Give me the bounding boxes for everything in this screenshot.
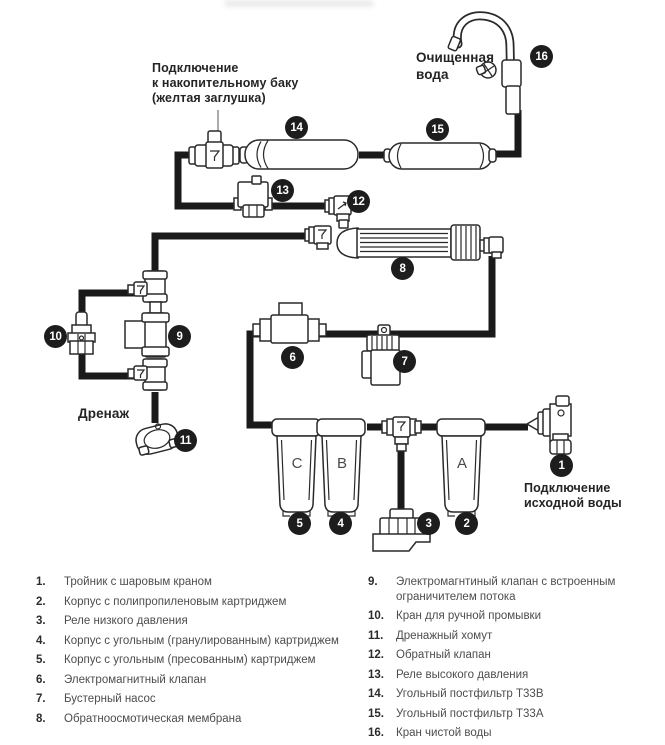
- low-pressure-tee-icon: [382, 417, 421, 451]
- membrane-elbow-fitting-icon: [305, 226, 331, 249]
- clean-water-label: Очищенная вода: [416, 49, 494, 83]
- tank-tee-fitting-icon: [189, 131, 239, 168]
- tank-connection-label: Подключение к накопительному баку (желта…: [152, 61, 298, 106]
- part-badge-6: 6: [281, 346, 304, 369]
- legend-item: 13.Реле высокого давления: [368, 668, 634, 683]
- legend-item-text: Угольный постфильтр Т33А: [396, 707, 543, 722]
- legend-item-number: 12.: [368, 648, 396, 663]
- part-badge-5: 5: [288, 512, 311, 535]
- part-badge-10: 10: [44, 325, 67, 348]
- installation-diagram-page: Подключение к накопительному баку (желта…: [0, 0, 665, 745]
- part-badge-14: 14: [285, 116, 308, 139]
- legend-item: 6.Электромагнитный клапан: [36, 673, 339, 688]
- legend-item-text: Дренажный хомут: [396, 629, 492, 644]
- part-badge-13: 13: [271, 179, 294, 202]
- legend-item: 2.Корпус с полипропиленовым картриджем: [36, 595, 339, 610]
- legend-item-number: 14.: [368, 687, 396, 702]
- legend-item-text: Угольный постфильтр Т33В: [396, 687, 543, 702]
- part-badge-4: 4: [329, 512, 352, 535]
- legend-item-number: 10.: [368, 609, 396, 624]
- feed-water-valve-icon: [527, 396, 571, 454]
- legend-item: 12.Обратный клапан: [368, 648, 634, 663]
- drain-label: Дренаж: [78, 406, 129, 421]
- part-badge-16: 16: [530, 45, 553, 68]
- part-badge-2: 2: [455, 512, 478, 535]
- legend-item-text: Обратный клапан: [396, 648, 491, 663]
- legend-item-number: 5.: [36, 653, 64, 668]
- ro-membrane-icon: [337, 225, 503, 260]
- legend-item-text: Обратноосмотическая мембрана: [64, 712, 241, 727]
- legend-item-number: 6.: [36, 673, 64, 688]
- legend-item-number: 11.: [368, 629, 396, 644]
- part-badge-1: 1: [550, 454, 573, 477]
- legend-item-text: Корпус с полипропиленовым картриджем: [64, 595, 286, 610]
- postfilter-t33b-icon: [240, 140, 358, 169]
- legend-item-number: 3.: [36, 614, 64, 629]
- legend-item: 8.Обратноосмотическая мембрана: [36, 712, 339, 727]
- part-badge-9: 9: [168, 325, 191, 348]
- legend-item-text: Тройник с шаровым краном: [64, 575, 212, 590]
- legend-item: 11.Дренажный хомут: [368, 629, 634, 644]
- legend-item-text: Реле высокого давления: [396, 668, 528, 683]
- postfilter-t33a-icon: [384, 143, 496, 169]
- legend-item-text: Бустерный насос: [64, 692, 156, 707]
- legend-column-right: 9.Электромагнтиный клапан с встроенным о…: [368, 575, 634, 745]
- legend-item-text: Корпус с угольным (пресованным) картридж…: [64, 653, 316, 668]
- legend-item-number: 15.: [368, 707, 396, 722]
- source-water-label: Подключение исходной воды: [524, 481, 622, 511]
- legend-item: 9.Электромагнтиный клапан с встроенным о…: [368, 575, 634, 604]
- legend-column-left: 1.Тройник с шаровым краном 2.Корпус с по…: [36, 575, 339, 731]
- legend-item-number: 7.: [36, 692, 64, 707]
- legend-item: 1.Тройник с шаровым краном: [36, 575, 339, 590]
- part-badge-15: 15: [426, 118, 449, 141]
- legend-item: 3.Реле низкого давления: [36, 614, 339, 629]
- housing-letter-a: A: [453, 456, 471, 472]
- legend-item-number: 1.: [36, 575, 64, 590]
- housing-letter-b: B: [333, 456, 351, 472]
- legend-item-number: 16.: [368, 726, 396, 741]
- part-badge-12: 12: [347, 190, 370, 213]
- legend-item-number: 2.: [36, 595, 64, 610]
- legend-item-text: Электромагнтиный клапан с встроенным огр…: [396, 575, 634, 604]
- legend-item-text: Электромагнитный клапан: [64, 673, 206, 688]
- part-badge-11: 11: [174, 429, 197, 452]
- legend-item-text: Кран чистой воды: [396, 726, 491, 741]
- housing-letter-c: C: [288, 456, 306, 472]
- part-badge-7: 7: [393, 350, 416, 373]
- legend-item: 7.Бустерный насос: [36, 692, 339, 707]
- legend-item: 4.Корпус с угольным (гранулированным) ка…: [36, 634, 339, 649]
- legend-item: 14.Угольный постфильтр Т33В: [368, 687, 634, 702]
- solenoid-restrictor-assembly-icon: [125, 271, 169, 390]
- legend-item: 15.Угольный постфильтр Т33А: [368, 707, 634, 722]
- legend-item-text: Реле низкого давления: [64, 614, 188, 629]
- legend-item: 5.Корпус с угольным (пресованным) картри…: [36, 653, 339, 668]
- legend-item-text: Корпус с угольным (гранулированным) карт…: [64, 634, 339, 649]
- legend-item: 16.Кран чистой воды: [368, 726, 634, 741]
- high-pressure-switch-icon: [234, 176, 272, 217]
- legend-item-text: Кран для ручной промывки: [396, 609, 541, 624]
- legend-item-number: 8.: [36, 712, 64, 727]
- part-badge-8: 8: [391, 257, 414, 280]
- legend-item-number: 4.: [36, 634, 64, 649]
- part-badge-3: 3: [417, 512, 440, 535]
- solenoid-valve-icon: [253, 303, 326, 343]
- legend-item: 10.Кран для ручной промывки: [368, 609, 634, 624]
- legend-item-number: 13.: [368, 668, 396, 683]
- manual-flush-valve-icon: [68, 312, 95, 354]
- legend-item-number: 9.: [368, 575, 396, 604]
